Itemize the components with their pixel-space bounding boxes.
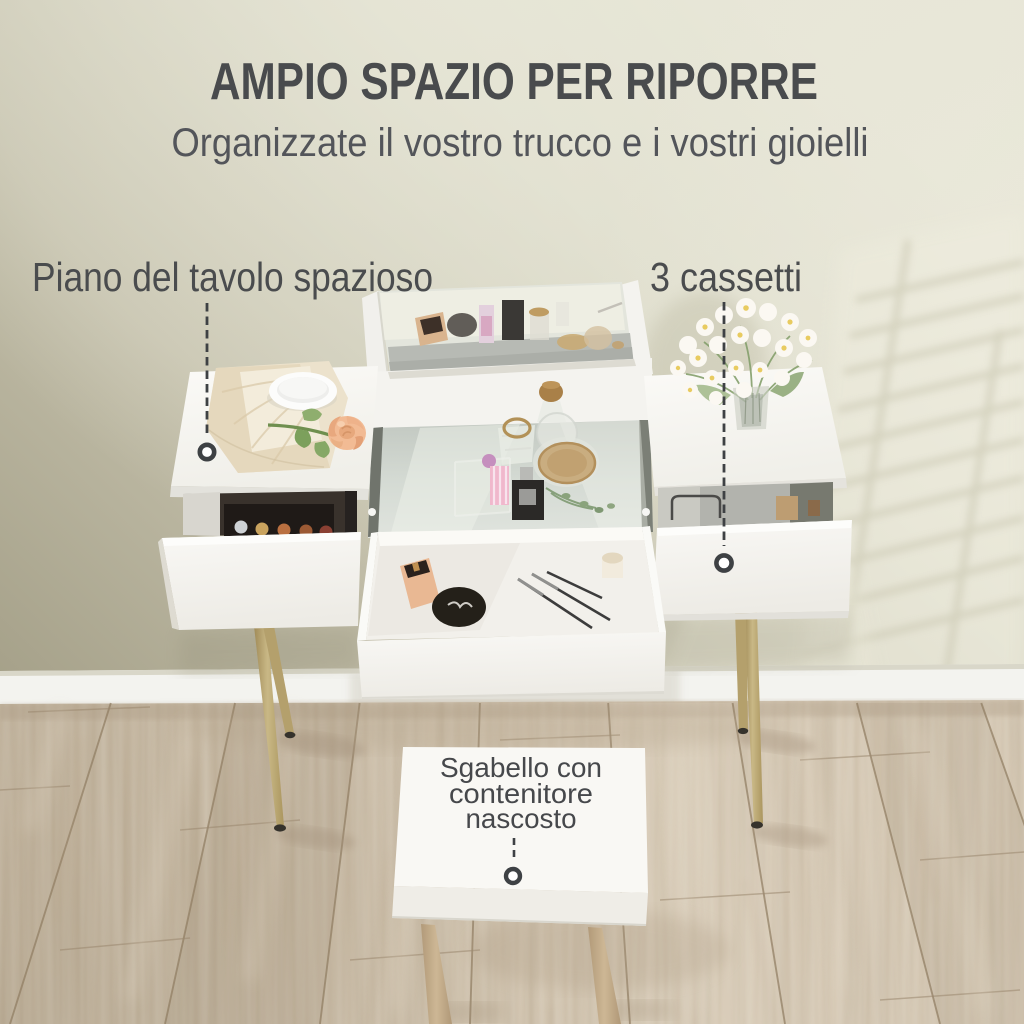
svg-text:Piano del tavolo spazioso: Piano del tavolo spazioso [32, 254, 433, 300]
svg-text:AMPIO SPAZIO PER RIPORRE: AMPIO SPAZIO PER RIPORRE [210, 53, 818, 111]
svg-text:Organizzate il vostro trucco e: Organizzate il vostro trucco e i vostri … [172, 121, 869, 165]
svg-text:nascosto: nascosto [466, 803, 577, 834]
svg-text:3 cassetti: 3 cassetti [650, 254, 802, 300]
